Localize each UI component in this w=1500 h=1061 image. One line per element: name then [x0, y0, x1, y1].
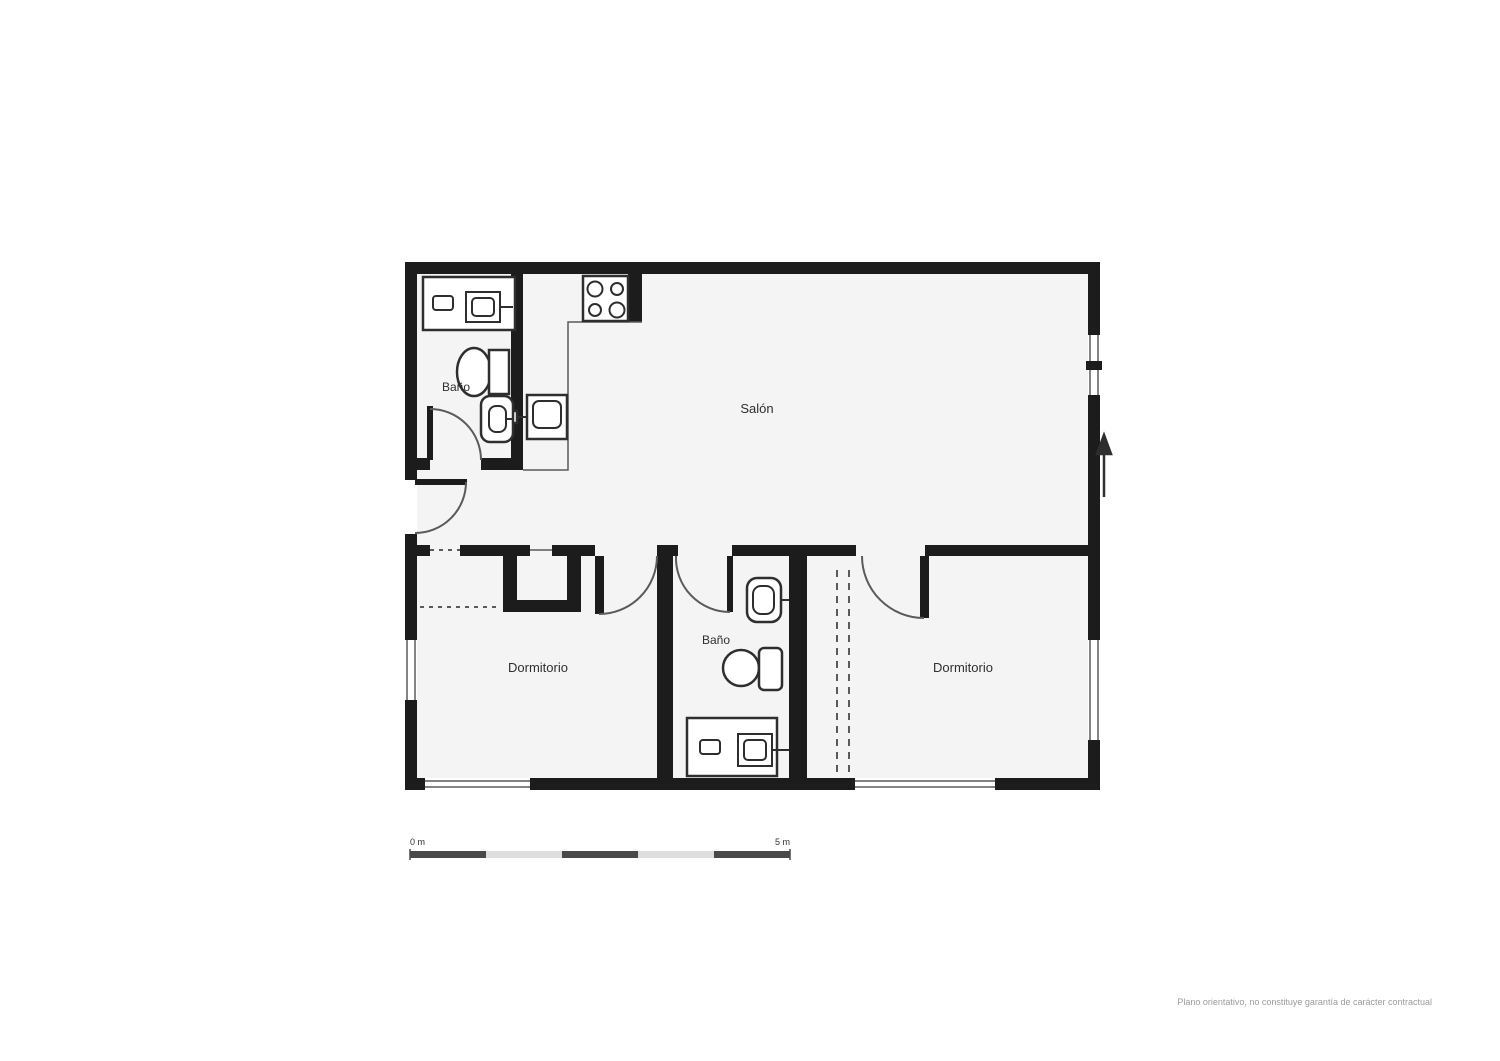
- window-right-salon: [1086, 335, 1102, 395]
- scale-segment: [486, 851, 562, 858]
- label-bano-middle: Baño: [702, 633, 730, 647]
- floor-area: [405, 262, 1100, 790]
- wall-right-upper: [1088, 262, 1100, 335]
- label-salon: Salón: [740, 401, 773, 416]
- scale-segment: [410, 851, 486, 858]
- window-bottom-bedroom1: [425, 778, 530, 790]
- wall-divider-seg6: [925, 545, 1100, 556]
- window-mullion-tick: [1086, 361, 1102, 370]
- footer-disclaimer: Plano orientativo, no constituye garantí…: [1177, 997, 1432, 1007]
- wall-left-upper: [405, 262, 417, 640]
- scale-start-label: 0 m: [410, 837, 425, 847]
- wall-divider-seg4: [657, 545, 678, 556]
- scale-segment: [562, 851, 638, 858]
- wall-bath-top-stub-right: [481, 458, 511, 470]
- vanity-icon: [687, 718, 789, 776]
- bidet-icon: [481, 396, 513, 442]
- scale-bar: 0 m 5 m: [410, 837, 790, 860]
- wall-closet-right: [567, 556, 581, 612]
- floor-plan: Salón Baño Dormitorio Baño Dormitorio 0 …: [0, 0, 1500, 1061]
- wall-bottom-right-end: [995, 778, 1100, 790]
- scale-segment: [638, 851, 714, 858]
- stove-icon: [583, 276, 628, 321]
- wall-bottom-left-end: [405, 778, 425, 790]
- wall-divider-seg1: [405, 545, 430, 556]
- door-leaf: [920, 556, 929, 618]
- door-leaf: [727, 556, 733, 612]
- wall-bath-bedroom2: [789, 556, 807, 790]
- wall-divider-seg3: [552, 545, 595, 556]
- door-leaf: [415, 479, 467, 485]
- door-leaf: [595, 556, 604, 614]
- window-left-bedroom1: [405, 640, 417, 700]
- wall-left-lower: [405, 700, 417, 790]
- scale-end-label: 5 m: [775, 837, 790, 847]
- label-bano-top: Baño: [442, 380, 470, 394]
- vanity-icon: [423, 277, 515, 330]
- window-right-bedroom2: [1088, 640, 1100, 740]
- wall-kitchen-stub: [628, 274, 642, 322]
- scale-segment: [714, 851, 790, 858]
- wall-divider-seg2: [460, 545, 530, 556]
- wall-bedroom1-bath: [657, 556, 673, 790]
- window-bottom-bedroom2: [855, 778, 995, 790]
- wall-right-middle: [1088, 395, 1100, 640]
- wall-divider-seg5: [732, 545, 856, 556]
- label-dormitorio-left: Dormitorio: [508, 660, 568, 675]
- label-dormitorio-right: Dormitorio: [933, 660, 993, 675]
- wall-top: [405, 262, 1100, 274]
- door-leaf: [427, 406, 433, 460]
